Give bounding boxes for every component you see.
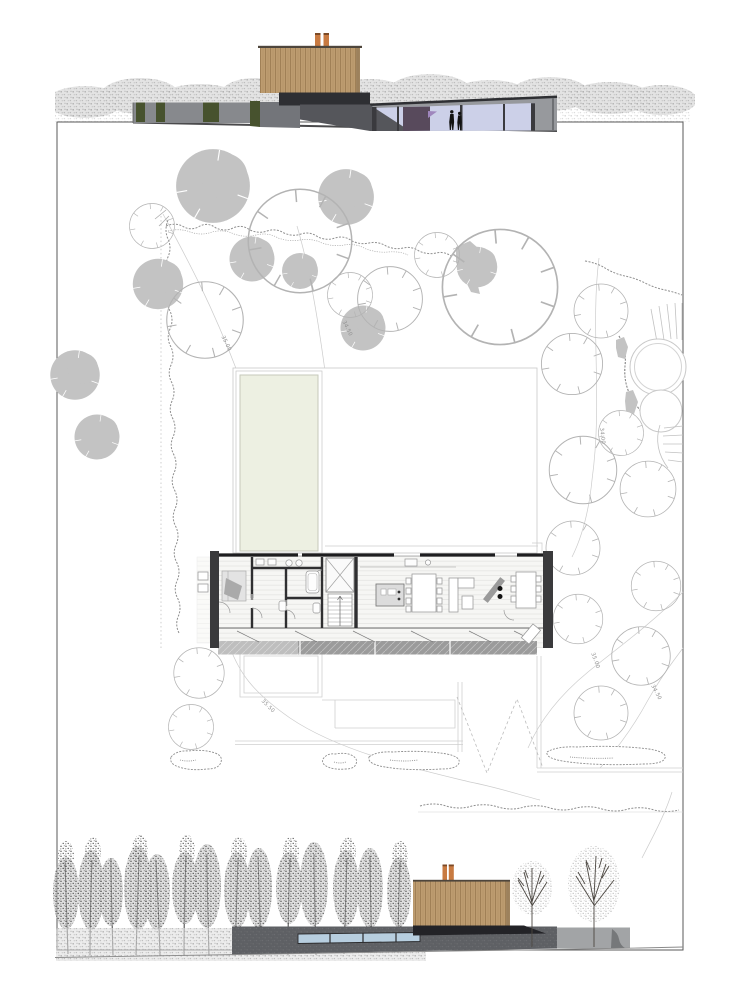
bedroom: [222, 571, 246, 601]
ribbon-window: [298, 933, 420, 944]
tree-canopy: [133, 259, 183, 309]
site-plan: 35.00 34.50 34.00 35.50 35.00 34.50: [50, 122, 686, 950]
green-panel: [156, 103, 165, 123]
tree-canopy: [176, 149, 250, 223]
green-panel: [136, 103, 145, 123]
round-terrace: [630, 339, 686, 395]
chimney: [443, 865, 448, 882]
wood-volume: [260, 48, 360, 94]
flue-dot: [498, 586, 503, 591]
tree-canopy: [457, 247, 498, 288]
tree-canopy: [50, 350, 100, 400]
upper-elevation: [47, 33, 697, 132]
green-panel: [203, 103, 219, 123]
north-wall: [219, 555, 543, 556]
architectural-drawing-sheet: 35.00 34.50 34.00 35.50 35.00 34.50: [0, 0, 731, 1000]
round-terrace: [640, 390, 682, 432]
roof-band: [279, 93, 370, 106]
brick-wall-left: [133, 103, 250, 124]
green-panel: [250, 101, 260, 127]
flue-dot: [498, 594, 503, 599]
wood-volume-cap: [258, 46, 362, 48]
tree-canopy: [75, 415, 120, 460]
courtyard: [233, 368, 542, 553]
east-end-wall: [543, 551, 553, 648]
west-deck: [197, 557, 210, 643]
tree-canopy: [282, 253, 318, 289]
lawn-court: [240, 375, 318, 551]
chimney: [449, 865, 454, 882]
house-floor-plan: [197, 551, 553, 655]
drawing-canvas: 35.00 34.50 34.00 35.50 35.00 34.50: [0, 0, 731, 1000]
wood-volume: [413, 882, 510, 928]
staircase: [326, 558, 354, 626]
west-end-wall: [210, 551, 219, 648]
lower-elevation: [53, 835, 683, 961]
brick-wall-mid: [260, 102, 300, 128]
purple-panel: [403, 107, 430, 132]
dining-table: [406, 574, 442, 612]
